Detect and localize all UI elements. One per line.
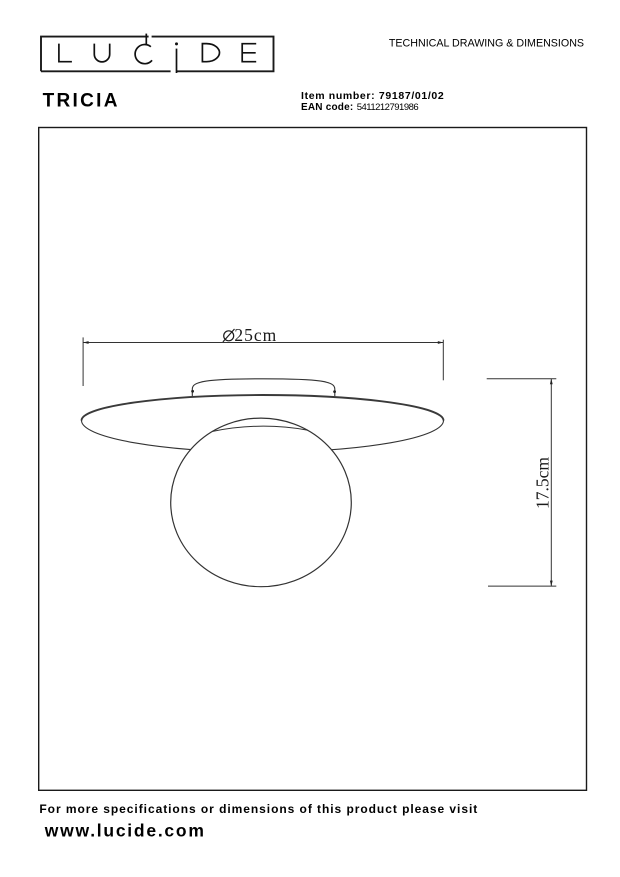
svg-text:5411212791986: 5411212791986	[357, 102, 419, 113]
svg-text:25cm: 25cm	[234, 325, 277, 345]
svg-text:www.lucide.com: www.lucide.com	[44, 821, 206, 841]
svg-text:EAN code:: EAN code:	[301, 102, 353, 113]
svg-text:TECHNICAL DRAWING & DIMENSIONS: TECHNICAL DRAWING & DIMENSIONS	[389, 37, 584, 49]
svg-text:For more specifications or dim: For more specifications or dimensions of…	[39, 802, 478, 816]
svg-text:17.5cm: 17.5cm	[533, 457, 553, 509]
svg-text:TRICIA: TRICIA	[43, 91, 120, 112]
svg-text:Item number: 79187/01/02: Item number: 79187/01/02	[301, 90, 444, 102]
